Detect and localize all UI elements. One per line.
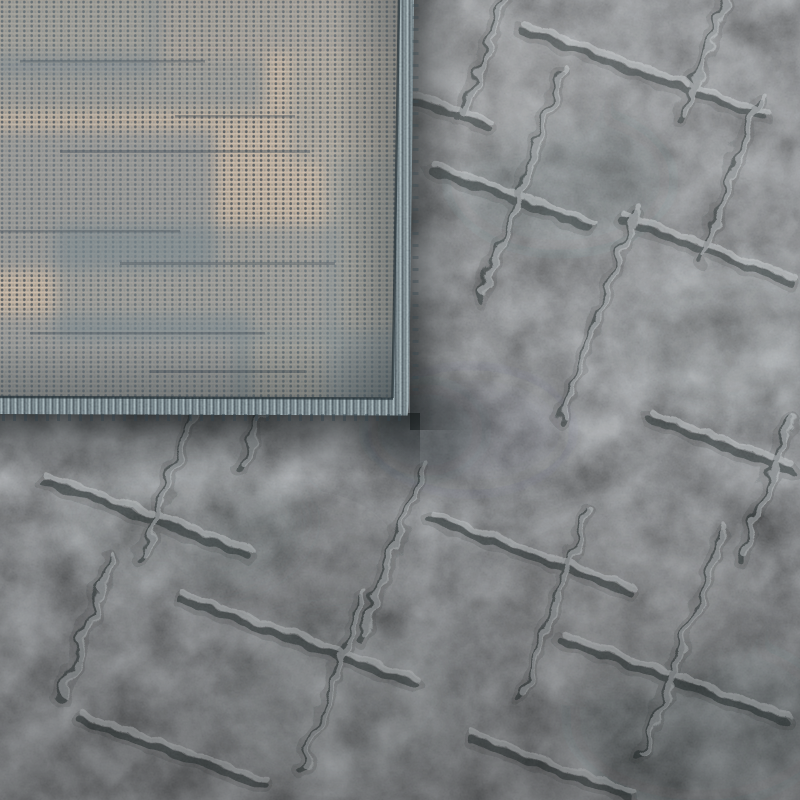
vignette-overlay (0, 0, 800, 800)
rug-photo-canvas (0, 0, 800, 800)
rug-product-photo (0, 0, 800, 800)
